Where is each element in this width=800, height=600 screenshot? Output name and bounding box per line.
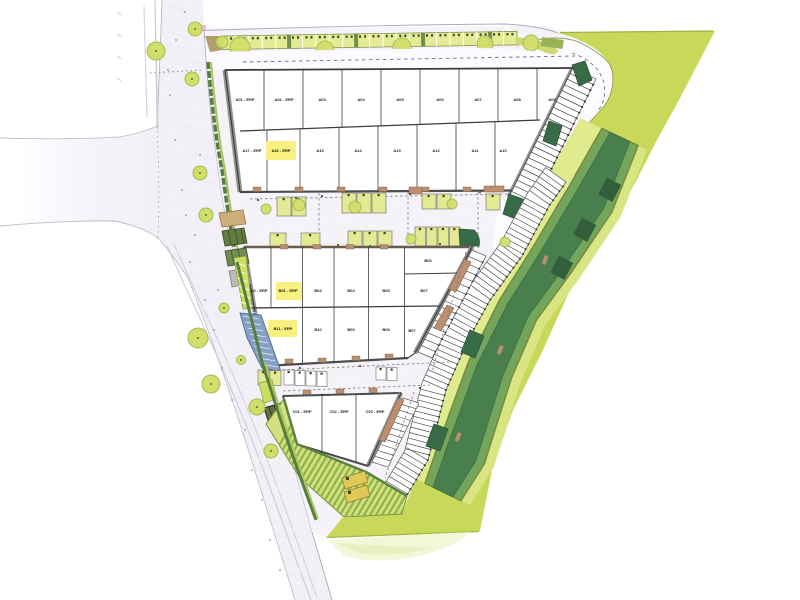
svg-text:B03: B03 xyxy=(314,288,322,293)
svg-text:A04: A04 xyxy=(357,97,365,102)
svg-text:A06: A06 xyxy=(436,97,444,102)
svg-text:B07: B07 xyxy=(408,328,416,333)
svg-text:A15: A15 xyxy=(316,148,324,153)
svg-text:A02 - ERP: A02 - ERP xyxy=(274,97,293,102)
svg-text:A01 - ERP: A01 - ERP xyxy=(235,97,254,102)
svg-text:B02 - ERP: B02 - ERP xyxy=(248,288,267,293)
svg-text:C02 - ERP: C02 - ERP xyxy=(329,409,348,414)
svg-text:A11: A11 xyxy=(471,148,479,153)
svg-text:A03: A03 xyxy=(318,97,326,102)
svg-text:B05: B05 xyxy=(382,288,390,293)
svg-text:B08: B08 xyxy=(382,327,390,332)
svg-text:A10: A10 xyxy=(499,148,507,153)
svg-text:A09: A09 xyxy=(548,97,556,102)
svg-text:A16 - ERP: A16 - ERP xyxy=(271,148,290,153)
svg-text:A07: A07 xyxy=(474,97,482,102)
svg-text:A13: A13 xyxy=(393,148,401,153)
svg-text:A12: A12 xyxy=(432,148,440,153)
svg-text:B06: B06 xyxy=(424,258,432,263)
svg-text:B01 - ERP: B01 - ERP xyxy=(278,288,297,293)
svg-text:B07: B07 xyxy=(420,288,428,293)
svg-text:B04: B04 xyxy=(347,288,355,293)
svg-text:C03 - ERP: C03 - ERP xyxy=(365,409,384,414)
svg-text:C01 - ERP: C01 - ERP xyxy=(292,409,311,414)
svg-text:A08: A08 xyxy=(513,97,521,102)
svg-text:A05: A05 xyxy=(396,97,404,102)
svg-text:B09: B09 xyxy=(347,327,355,332)
svg-text:A17 - ERP: A17 - ERP xyxy=(242,148,261,153)
svg-text:B11 - ERP: B11 - ERP xyxy=(274,326,293,331)
svg-text:B10: B10 xyxy=(314,327,322,332)
svg-text:A14: A14 xyxy=(354,148,362,153)
